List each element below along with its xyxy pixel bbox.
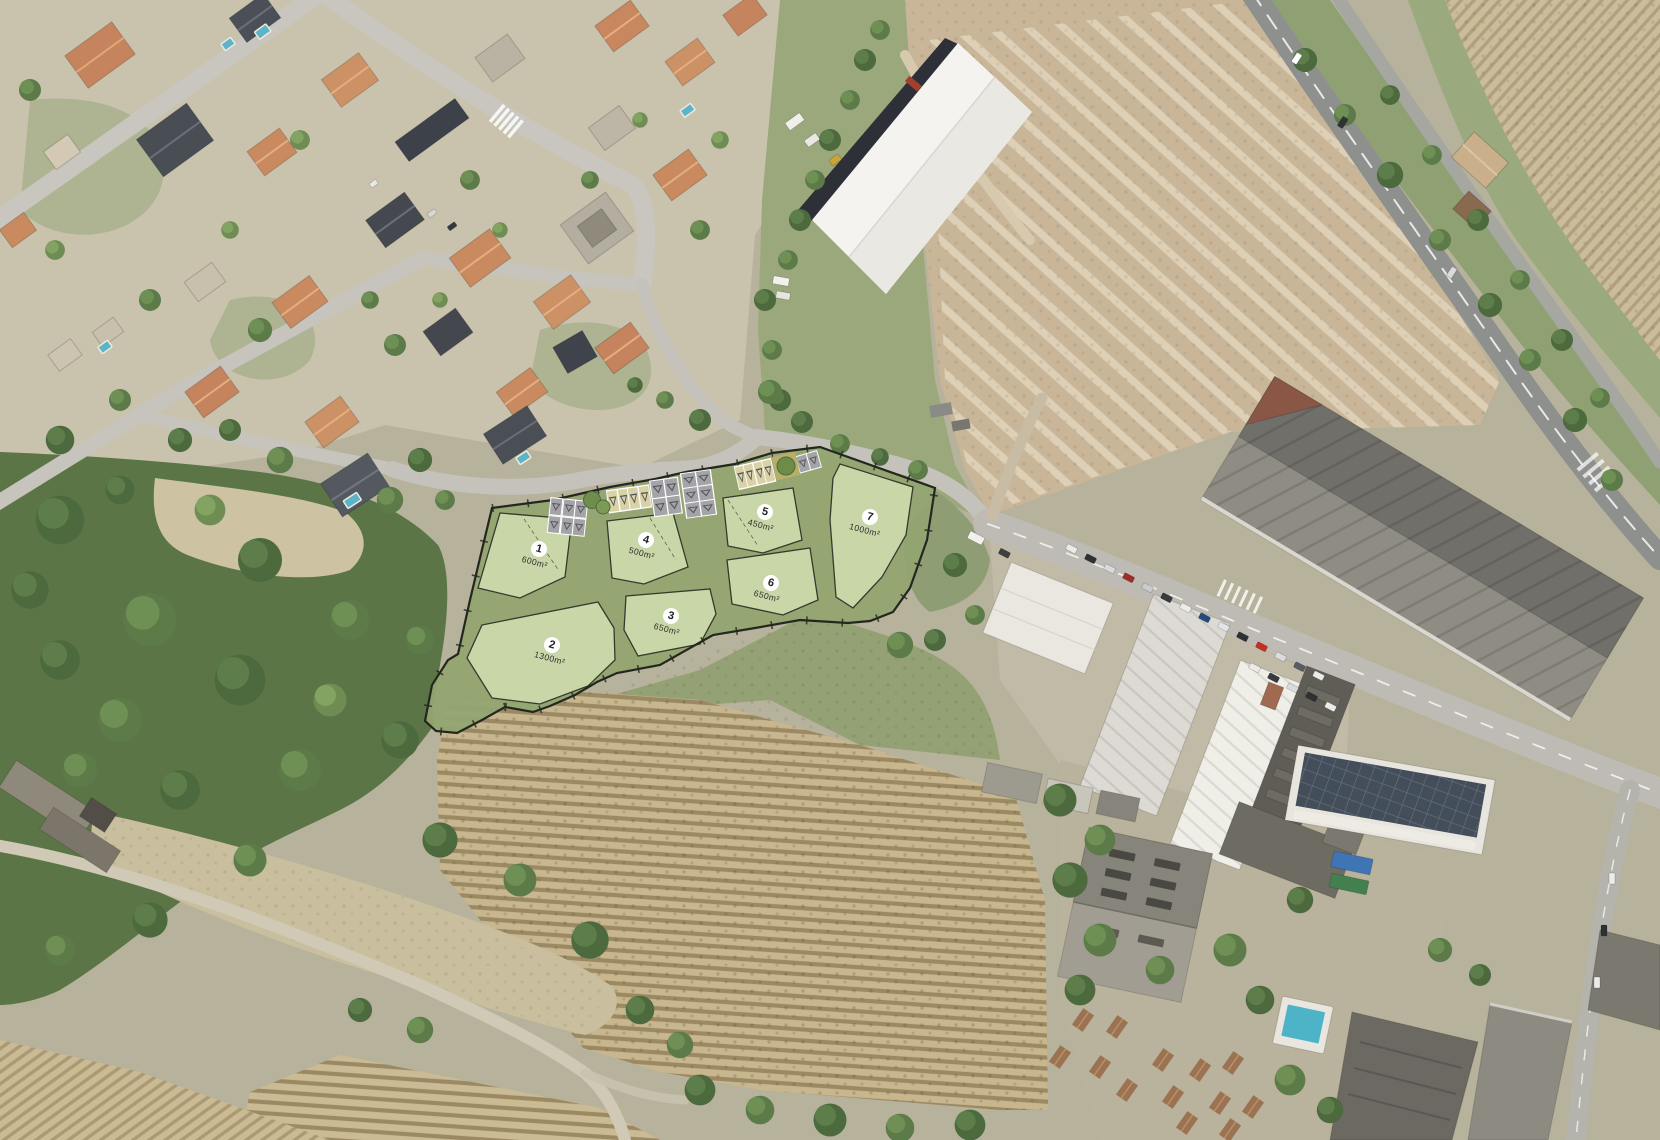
aerial-site-plan: 1600m² 21300m² 3650m² 4500m² 5450m² 6650…	[0, 0, 1660, 1140]
parking-block-gray	[650, 477, 683, 517]
car	[1594, 977, 1600, 988]
car	[1601, 925, 1607, 936]
parking-block-gray	[681, 470, 717, 519]
parking-block-gray	[547, 498, 587, 537]
aerial-photo-canvas: 1600m² 21300m² 3650m² 4500m² 5450m² 6650…	[0, 0, 1660, 1140]
car	[1609, 873, 1615, 884]
compound-pool	[1273, 996, 1334, 1054]
